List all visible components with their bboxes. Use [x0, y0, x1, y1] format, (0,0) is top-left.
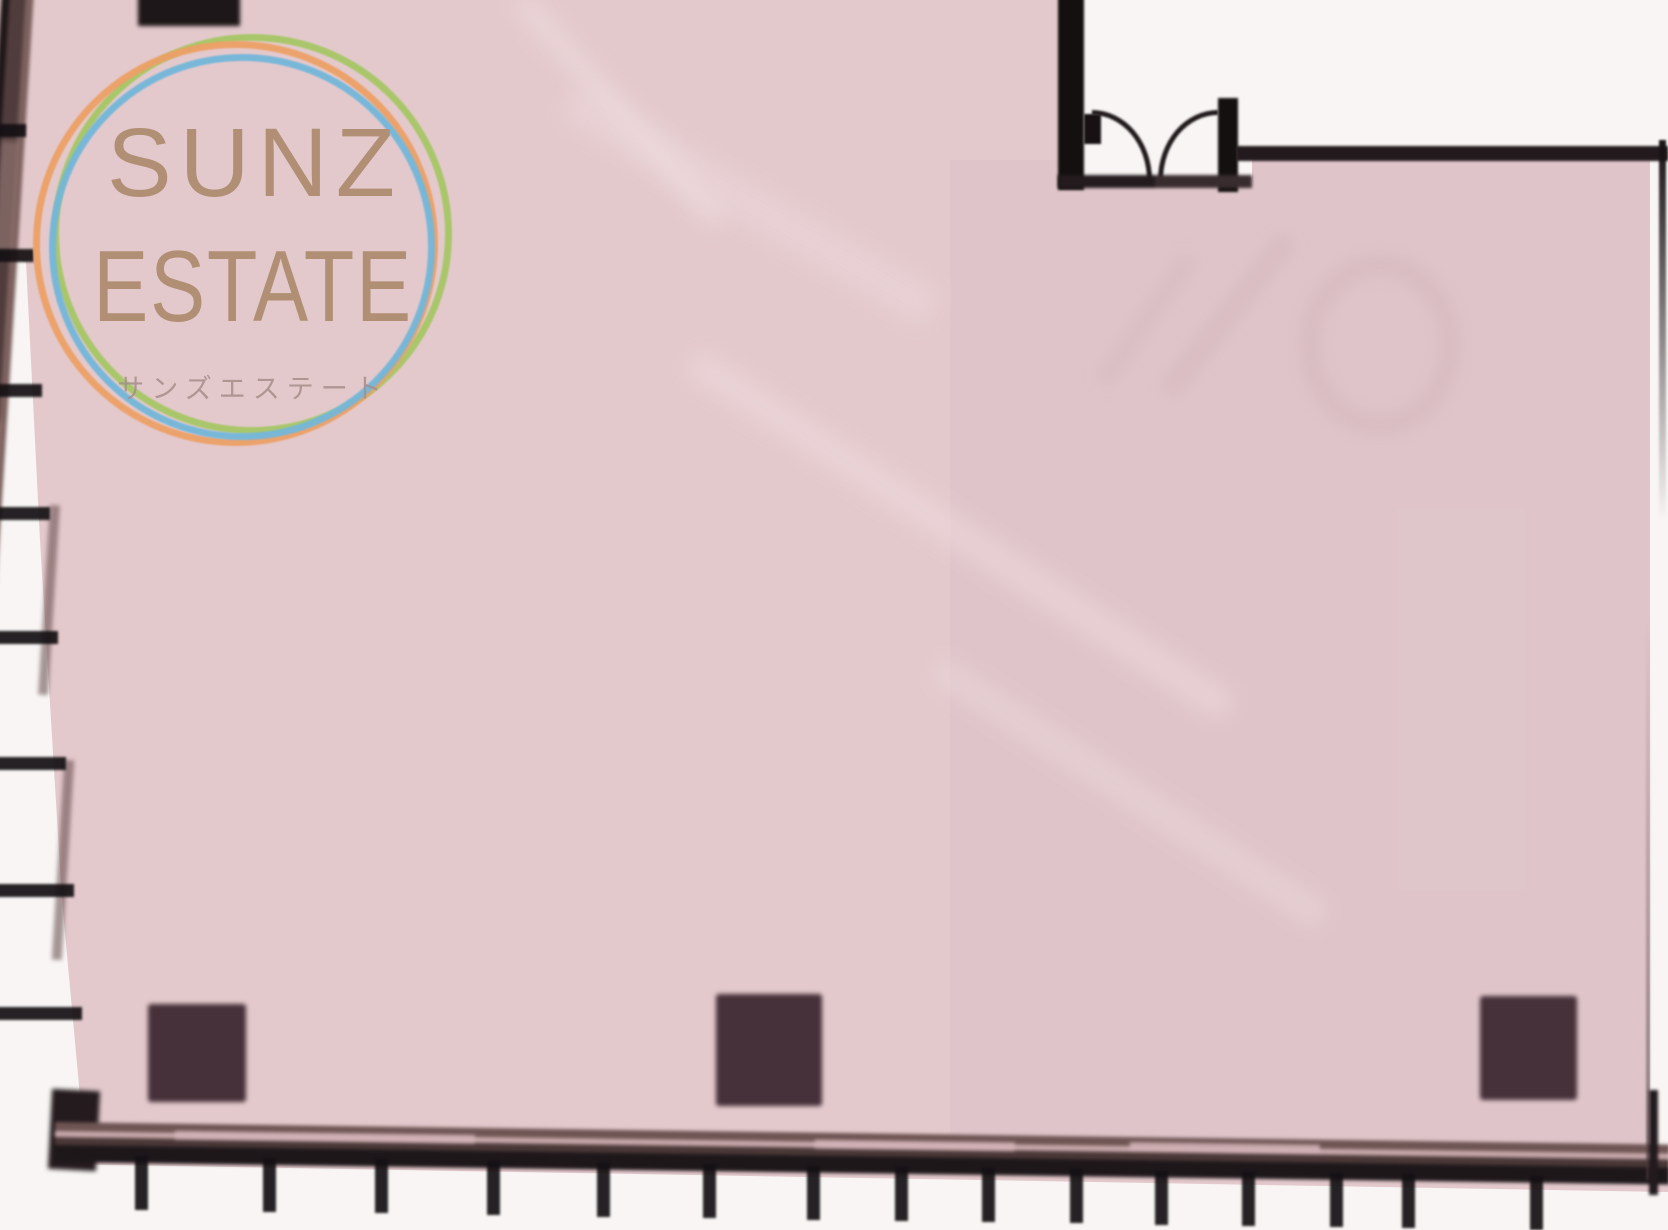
watermark-ghost-mark	[1300, 255, 1460, 435]
top-wall-column-stub	[138, 0, 240, 26]
left-wall-opening	[0, 140, 19, 251]
dimension-tick	[1070, 1169, 1083, 1223]
left-wall-opening	[0, 420, 1, 551]
dimension-tick	[0, 384, 42, 397]
pillar	[716, 994, 822, 1106]
dimension-tick	[0, 631, 58, 644]
logo-title-line2: ESTATE	[93, 237, 413, 338]
dimension-tick	[1330, 1173, 1343, 1227]
watermark-ghost-streak	[558, 83, 942, 328]
dimension-tick	[0, 124, 26, 137]
dimension-tick	[263, 1158, 276, 1212]
dimension-tick	[597, 1163, 610, 1217]
logo-subtitle: サンズエステート	[117, 376, 388, 403]
bottom-wall-gap	[1130, 1142, 1320, 1154]
dimension-tick	[1402, 1174, 1415, 1228]
dimension-tick	[487, 1161, 500, 1215]
pillar	[148, 1004, 246, 1102]
logo-title-line1: SUNZ	[107, 114, 403, 211]
dimension-tick	[0, 884, 74, 897]
right-wall-corner	[1649, 1090, 1658, 1195]
brand-logo: SUNZ ESTATE サンズエステート	[40, 36, 446, 448]
dimension-tick	[1155, 1171, 1168, 1225]
dimension-tick	[895, 1167, 908, 1221]
dimension-tick	[135, 1156, 148, 1210]
floor-plan-canvas: SUNZ ESTATE サンズエステート	[0, 0, 1668, 1230]
dimension-tick	[1530, 1176, 1543, 1230]
dimension-tick	[0, 1007, 82, 1020]
dimension-tick	[807, 1166, 820, 1220]
top-right-wall	[1236, 146, 1668, 161]
dimension-tick	[0, 757, 66, 770]
right-wall-line-upper	[1659, 140, 1666, 520]
door-jamb-left	[1058, 0, 1084, 190]
dimension-tick	[0, 507, 50, 520]
dimension-tick	[0, 249, 34, 262]
dimension-tick	[375, 1159, 388, 1213]
dimension-tick	[703, 1164, 716, 1218]
bottom-wall-gap	[175, 1131, 475, 1144]
dimension-tick	[982, 1168, 995, 1222]
pillar	[1480, 996, 1577, 1100]
bottom-wall-gap	[815, 1140, 1015, 1152]
door-threshold	[1058, 175, 1252, 188]
dimension-tick	[1242, 1172, 1255, 1226]
